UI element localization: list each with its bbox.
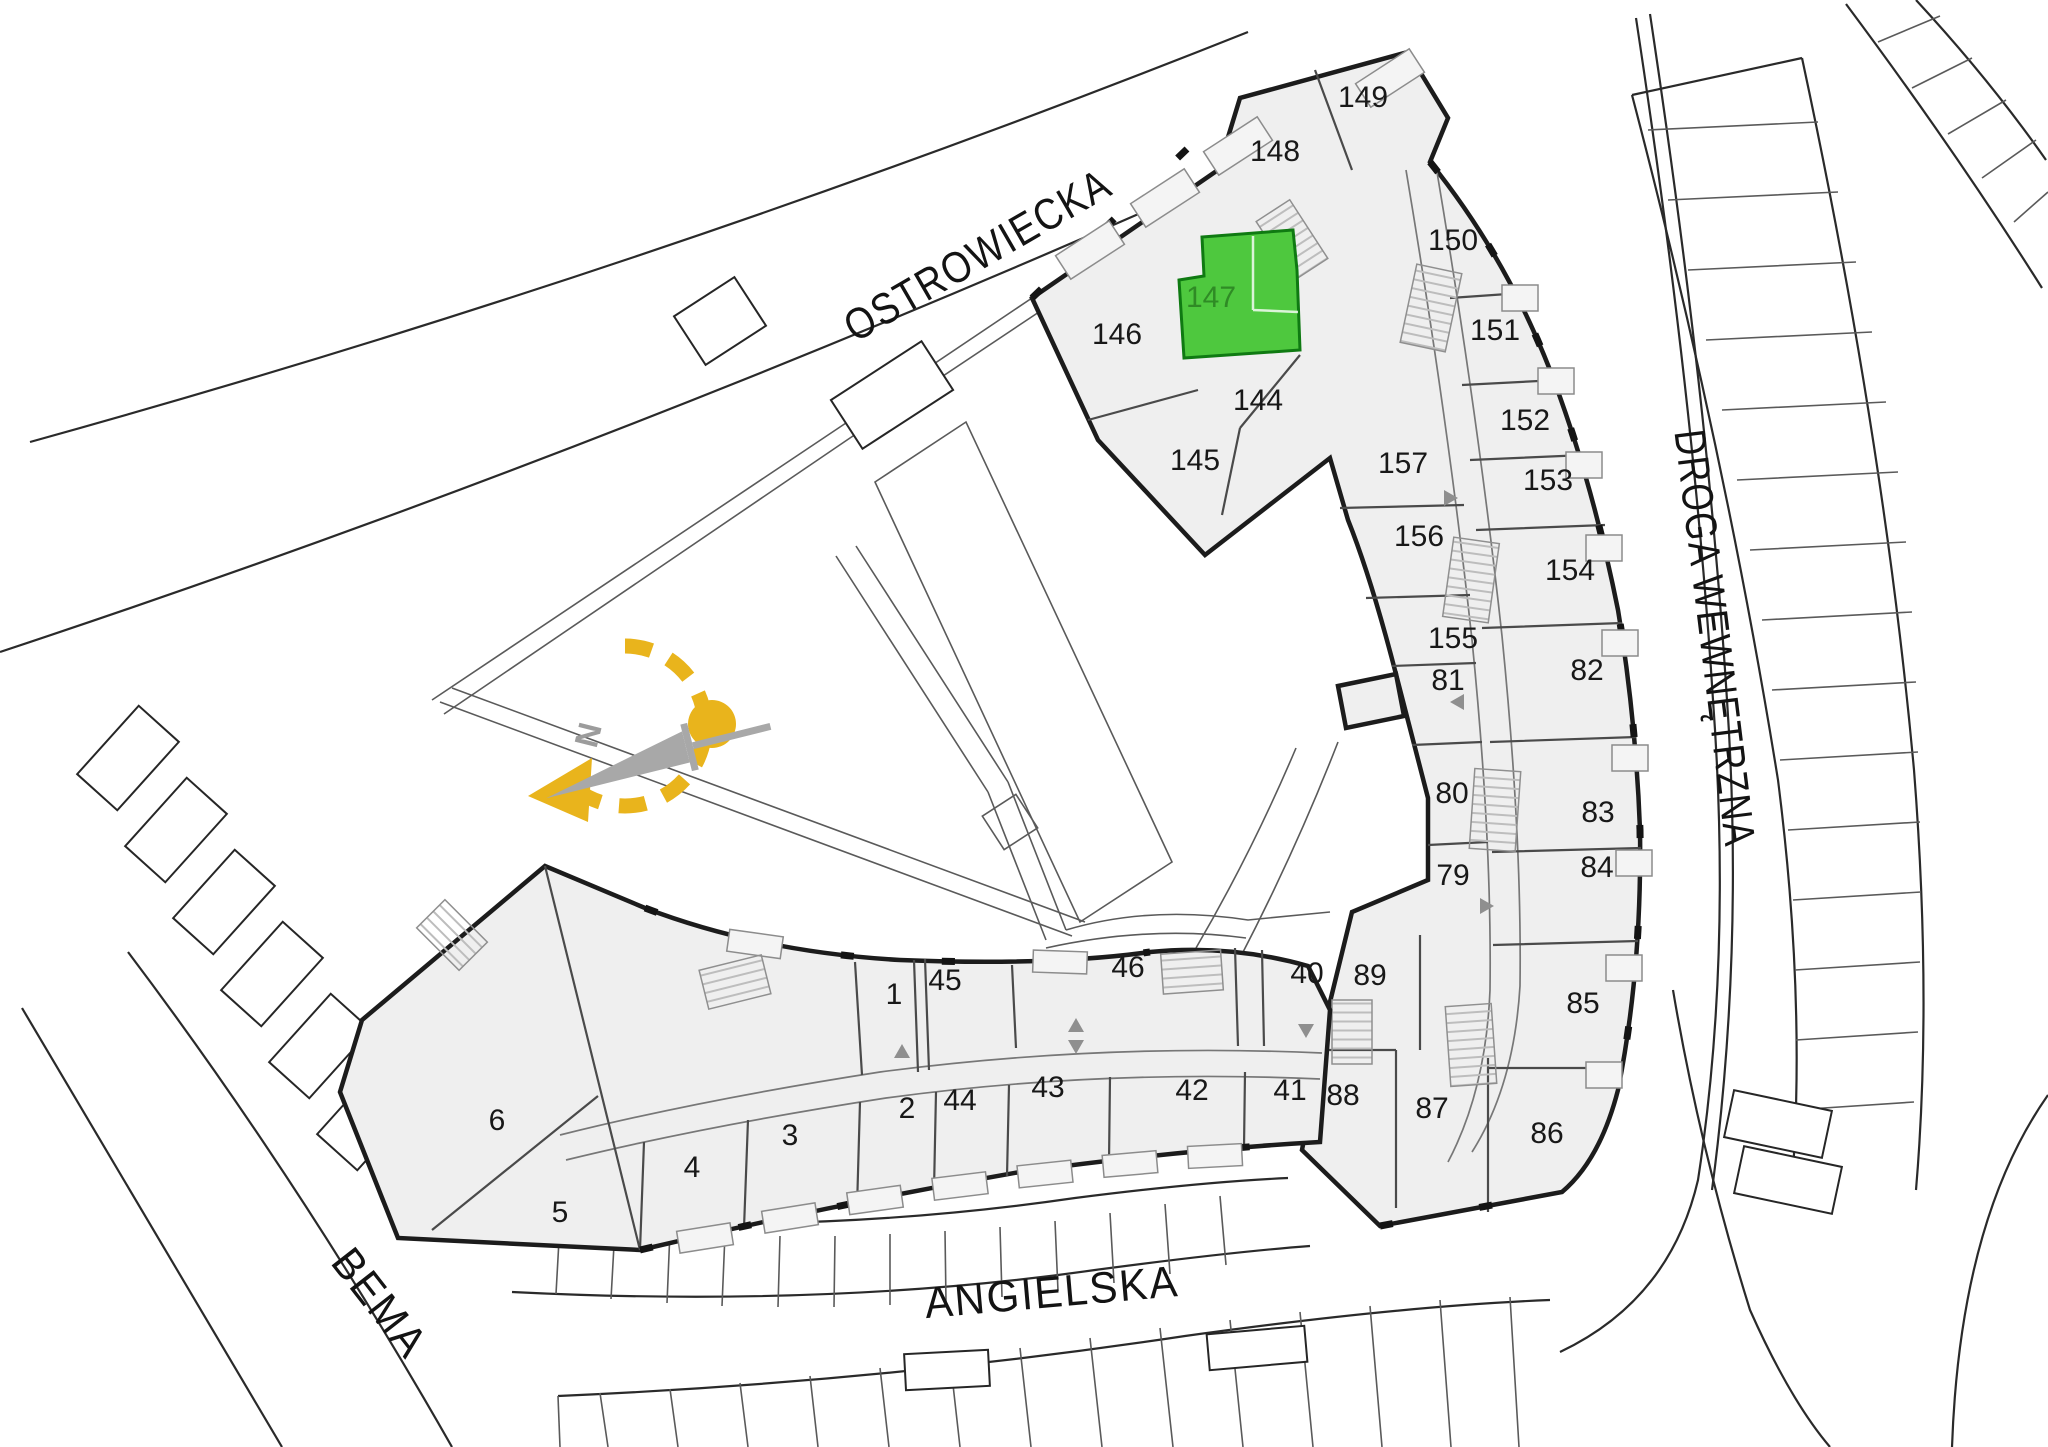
street-label-droga-wewnetrzna: DROGA WEWNĘTRZNA (1664, 427, 1764, 850)
unit-label-81[interactable]: 81 (1431, 664, 1464, 697)
unit-label-46[interactable]: 46 (1111, 951, 1144, 984)
unit-label-150[interactable]: 150 (1428, 224, 1478, 257)
unit-label-148[interactable]: 148 (1250, 135, 1300, 168)
unit-label-40[interactable]: 40 (1290, 957, 1323, 990)
unit-label-1[interactable]: 1 (886, 978, 903, 1011)
unit-label-85[interactable]: 85 (1566, 987, 1599, 1020)
unit-label-152[interactable]: 152 (1500, 404, 1550, 437)
unit-label-145[interactable]: 145 (1170, 444, 1220, 477)
unit-label-3[interactable]: 3 (782, 1119, 799, 1152)
unit-label-79[interactable]: 79 (1436, 859, 1469, 892)
compass-n-label: N (567, 719, 609, 751)
unit-label-153[interactable]: 153 (1523, 464, 1573, 497)
unit-label-42[interactable]: 42 (1175, 1074, 1208, 1107)
unit-label-154[interactable]: 154 (1545, 554, 1595, 587)
unit-label-146[interactable]: 146 (1092, 318, 1142, 351)
parking-corner-northeast (1846, 0, 2048, 288)
unit-label-4[interactable]: 4 (684, 1151, 701, 1184)
unit-label-156[interactable]: 156 (1394, 520, 1444, 553)
site-plan: N OSTROWIECKADROGA WEWNĘTRZNAANGIELSKABE… (0, 0, 2048, 1447)
unit-label-151[interactable]: 151 (1470, 314, 1520, 347)
parking-strip-east (1632, 58, 1924, 1214)
unit-label-157[interactable]: 157 (1378, 447, 1428, 480)
unit-label-86[interactable]: 86 (1530, 1117, 1563, 1150)
unit-label-87[interactable]: 87 (1415, 1092, 1448, 1125)
unit-label-144[interactable]: 144 (1233, 384, 1283, 417)
unit-label-5[interactable]: 5 (552, 1196, 569, 1229)
compass-arrowhead (528, 758, 592, 822)
unit-label-155[interactable]: 155 (1428, 622, 1478, 655)
building-south (340, 866, 1330, 1253)
unit-label-82[interactable]: 82 (1570, 654, 1603, 687)
compass: N (528, 646, 776, 822)
unit-label-83[interactable]: 83 (1581, 796, 1614, 829)
unit-label-147[interactable]: 147 (1186, 281, 1236, 314)
unit-label-84[interactable]: 84 (1580, 851, 1613, 884)
unit-label-6[interactable]: 6 (489, 1104, 506, 1137)
unit-label-2[interactable]: 2 (899, 1092, 916, 1125)
unit-label-43[interactable]: 43 (1031, 1071, 1064, 1104)
unit-label-41[interactable]: 41 (1273, 1074, 1306, 1107)
unit-label-89[interactable]: 89 (1353, 959, 1386, 992)
site-plan-svg: N OSTROWIECKADROGA WEWNĘTRZNAANGIELSKABE… (0, 0, 2048, 1447)
unit-label-88[interactable]: 88 (1326, 1079, 1359, 1112)
unit-label-45[interactable]: 45 (928, 964, 961, 997)
unit-label-44[interactable]: 44 (943, 1084, 976, 1117)
unit-label-80[interactable]: 80 (1435, 777, 1468, 810)
unit-label-149[interactable]: 149 (1338, 81, 1388, 114)
street-label-bema: BEMA (322, 1239, 438, 1368)
street-label-angielska: ANGIELSKA (923, 1257, 1181, 1328)
